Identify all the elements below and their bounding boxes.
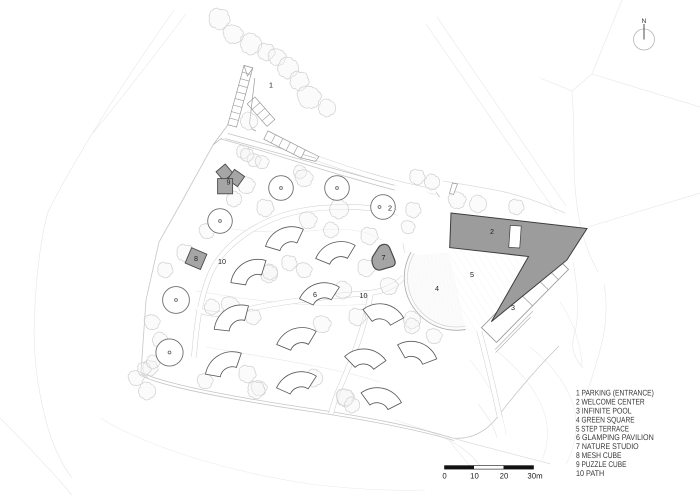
svg-text:5: 5 <box>470 270 474 279</box>
svg-text:6 GLAMPING PAVILION: 6 GLAMPING PAVILION <box>576 433 654 442</box>
svg-text:8 MESH CUBE: 8 MESH CUBE <box>576 451 622 460</box>
svg-text:4 GREEN SQUARE: 4 GREEN SQUARE <box>576 415 635 424</box>
svg-text:10: 10 <box>470 472 479 481</box>
svg-text:9 PUZZLE CUBE: 9 PUZZLE CUBE <box>576 460 627 469</box>
svg-text:4: 4 <box>435 284 439 293</box>
svg-text:10 PATH: 10 PATH <box>576 469 604 478</box>
svg-text:7 NATURE STUDIO: 7 NATURE STUDIO <box>576 442 639 451</box>
svg-text:2: 2 <box>388 204 392 213</box>
svg-text:1: 1 <box>269 81 273 90</box>
svg-text:20: 20 <box>500 472 509 481</box>
svg-text:1 PARKING (ENTRANCE): 1 PARKING (ENTRANCE) <box>576 389 654 398</box>
svg-text:9: 9 <box>227 178 231 187</box>
svg-text:3: 3 <box>511 303 515 312</box>
svg-text:3 INFINITE POOL: 3 INFINITE POOL <box>576 406 632 415</box>
svg-text:0: 0 <box>442 472 447 481</box>
svg-text:7: 7 <box>382 253 386 262</box>
svg-text:2: 2 <box>490 227 494 236</box>
svg-text:10: 10 <box>218 257 226 266</box>
svg-text:5 STEP TERRACE: 5 STEP TERRACE <box>576 424 629 433</box>
svg-text:10: 10 <box>360 291 368 300</box>
svg-text:N: N <box>642 18 647 25</box>
svg-text:2 WELCOME CENTER: 2 WELCOME CENTER <box>576 397 645 406</box>
svg-text:6: 6 <box>313 290 317 299</box>
svg-text:30m: 30m <box>527 472 542 481</box>
svg-text:8: 8 <box>194 254 198 263</box>
